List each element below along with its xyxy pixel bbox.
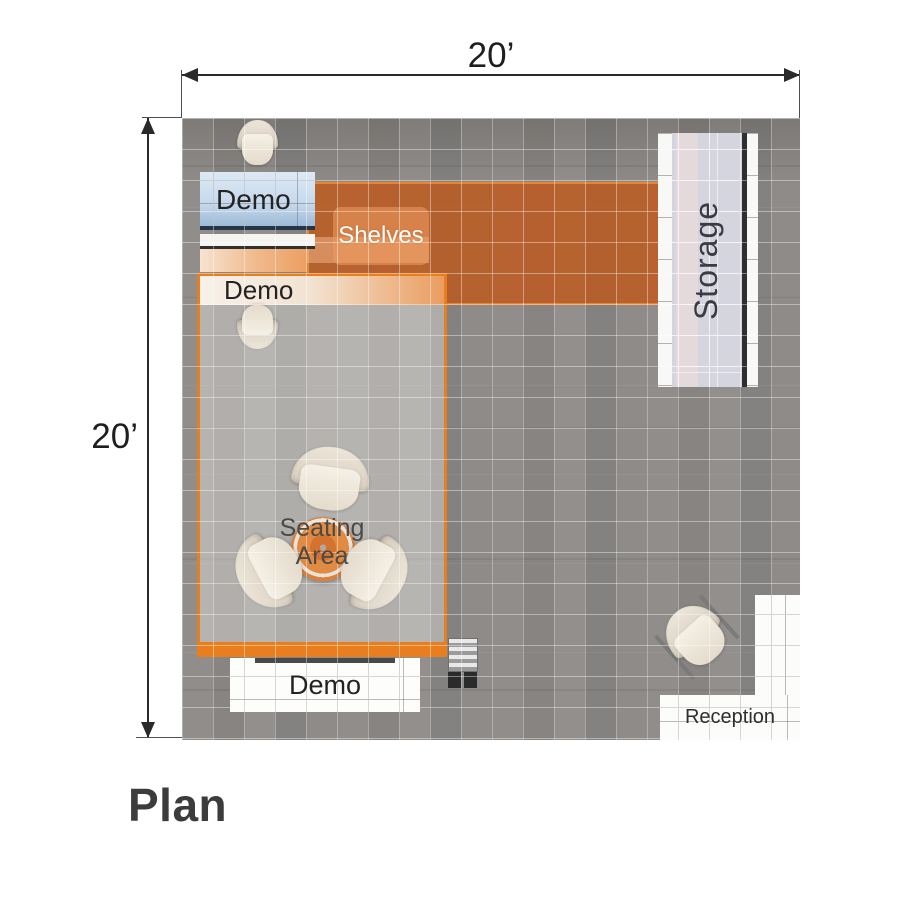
demo-middle-label: Demo xyxy=(224,275,293,306)
chair-seat xyxy=(242,134,274,165)
dimension-arrow-right-icon xyxy=(784,68,800,82)
counter-orange-strip xyxy=(200,249,307,272)
counter-shelf-strip xyxy=(200,234,315,249)
storage-label: Storage xyxy=(689,200,726,319)
demo-counter-middle: Demo xyxy=(200,276,444,305)
shelf-foot xyxy=(448,672,461,688)
demo-bottom-label: Demo xyxy=(289,670,361,701)
shelves-area: Shelves xyxy=(333,207,429,265)
reception-counter-front: Reception xyxy=(660,695,800,740)
left-dimension-line xyxy=(147,118,149,738)
chair xyxy=(237,120,278,167)
chair-seat xyxy=(242,305,274,335)
page-title: Plan xyxy=(128,778,227,832)
shelf-step-unit xyxy=(448,638,478,688)
storage-unit: Storage xyxy=(658,133,758,387)
chair-seat xyxy=(296,463,362,515)
dimension-arrow-up-icon xyxy=(141,118,155,134)
width-dimension-label: 20’ xyxy=(421,36,561,76)
storage-body: Storage xyxy=(672,133,742,387)
booth-floor: Shelves Demo Demo xyxy=(182,118,800,740)
dimension-arrow-down-icon xyxy=(141,722,155,738)
dimension-arrow-left-icon xyxy=(182,68,198,82)
extension-line xyxy=(136,737,182,738)
storage-edge xyxy=(658,133,672,387)
demo-counter-bottom: Demo xyxy=(230,658,420,712)
demo-top-label: Demo xyxy=(216,184,315,216)
height-dimension-label: 20’ xyxy=(82,417,138,457)
extension-line xyxy=(181,70,182,118)
counter-edge xyxy=(255,658,395,663)
reception-label: Reception xyxy=(685,706,775,729)
chair xyxy=(237,303,278,349)
reception-chair xyxy=(654,594,739,679)
shelf-foot xyxy=(464,672,477,688)
extension-line xyxy=(799,70,800,118)
shelf-stripes xyxy=(448,638,478,672)
lounge-chair xyxy=(287,442,373,518)
seating-zone-bottom-edge xyxy=(197,642,447,657)
seating-area-label: Seating Area xyxy=(252,514,392,570)
extension-line xyxy=(142,117,182,118)
storage-edge xyxy=(747,133,758,387)
demo-counter-top: Demo xyxy=(200,172,315,230)
shelves-label: Shelves xyxy=(338,222,423,250)
